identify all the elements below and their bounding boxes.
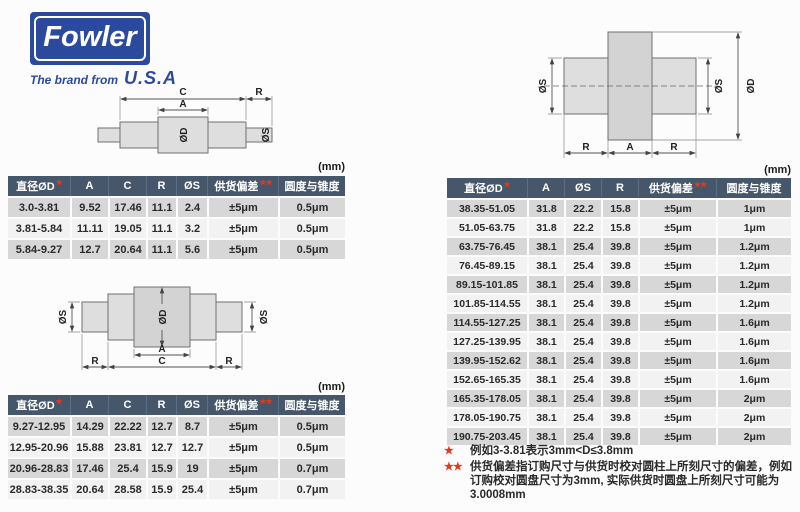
table-row: 76.45-89.1538.125.439.8±5μm1.2μm xyxy=(447,255,791,274)
table-cell: 38.1 xyxy=(527,255,564,274)
table-row: 190.75-203.4538.125.439.8±5μm2μm xyxy=(447,426,791,445)
dim-label-R: R xyxy=(255,87,263,98)
star-marker: ★★ xyxy=(444,460,470,474)
column-header: 供货偏差★★ xyxy=(207,395,278,415)
column-header: C xyxy=(108,176,146,196)
table-cell: 39.8 xyxy=(601,255,638,274)
table-cell: 152.65-165.35 xyxy=(447,369,527,388)
shaft-stub-left xyxy=(82,302,108,332)
column-header: C xyxy=(108,395,146,415)
dim-label-R-right: R xyxy=(225,356,233,367)
star-marker: ★★ xyxy=(259,178,271,187)
table-cell: 2μm xyxy=(716,388,791,407)
star-marker: ★★ xyxy=(259,397,271,406)
table-cell: 25.4 xyxy=(564,388,601,407)
table-cell: 15.88 xyxy=(70,436,108,457)
table-cell: 0.7μm xyxy=(278,457,345,478)
table-cell: 1.2μm xyxy=(716,255,791,274)
table-row: 101.85-114.5538.125.439.8±5μm1.2μm xyxy=(447,293,791,312)
dim-label-A: A xyxy=(626,142,633,153)
column-header: 直径ØD★ xyxy=(447,178,527,198)
dim-label-OS-right: ØS xyxy=(259,309,270,324)
header-row: 直径ØD★ACRØS供货偏差★★圆度与锥度 xyxy=(8,395,345,415)
header-row: 直径ØD★ACRØS供货偏差★★圆度与锥度 xyxy=(8,176,345,196)
brand-name: Fowler xyxy=(43,21,136,56)
table-cell: ±5μm xyxy=(638,350,716,369)
table-cell: ±5μm xyxy=(207,238,278,259)
table-cell: 38.1 xyxy=(527,293,564,312)
table-cell: ±5μm xyxy=(638,198,716,217)
table-cell: 12.7 xyxy=(146,415,176,436)
table-cell: 1.2μm xyxy=(716,293,791,312)
table-cell: 178.05-190.75 xyxy=(447,407,527,426)
star-marker: ★★ xyxy=(694,180,706,189)
table-cell: 3.0-3.81 xyxy=(8,196,70,217)
spec-table-small-lower: 直径ØD★ACRØS供货偏差★★圆度与锥度9.27-12.9514.2922.2… xyxy=(8,395,345,499)
table-cell: 190.75-203.45 xyxy=(447,426,527,445)
shaft-stub-left xyxy=(98,128,120,142)
table-row: 12.95-20.9615.8823.8112.712.7±5μm0.5μm xyxy=(8,436,345,457)
table-cell: 39.8 xyxy=(601,331,638,350)
table-cell: 2μm xyxy=(716,426,791,445)
shaft-mid-right xyxy=(190,294,216,340)
table-cell: 0.5μm xyxy=(278,436,345,457)
table-cell: 101.85-114.55 xyxy=(447,293,527,312)
footnotes: ★ 例如3-3.81表示3mm<D≤3.8mm ★★ 供货偏差指订购尺寸与供货时… xyxy=(444,444,796,504)
table-cell: 39.8 xyxy=(601,388,638,407)
table-cell: 31.8 xyxy=(527,198,564,217)
table-cell: 38.1 xyxy=(527,274,564,293)
table-cell: 139.95-152.62 xyxy=(447,350,527,369)
table-cell: 165.35-178.05 xyxy=(447,388,527,407)
dim-label-OS: ØS xyxy=(261,127,272,142)
column-header: 圆度与锥度 xyxy=(716,178,791,198)
footnote-size-range: ★ 例如3-3.81表示3mm<D≤3.8mm xyxy=(444,444,796,458)
table-cell: 23.81 xyxy=(108,436,146,457)
table-cell: 2μm xyxy=(716,407,791,426)
table-cell: 25.4 xyxy=(564,350,601,369)
table-row: 5.84-9.2712.720.6411.15.6±5μm0.5μm xyxy=(8,238,345,259)
table-cell: 1.2μm xyxy=(716,236,791,255)
table-cell: 15.9 xyxy=(146,478,176,499)
star-marker: ★ xyxy=(56,397,62,406)
table-cell: 11.11 xyxy=(70,217,108,238)
table-cell: 15.9 xyxy=(146,457,176,478)
table-cell: ±5μm xyxy=(207,196,278,217)
shaft-mid-left xyxy=(120,122,158,148)
tagline-text: The brand from xyxy=(30,73,118,87)
table-cell: ±5μm xyxy=(638,369,716,388)
table-cell: 12.7 xyxy=(146,436,176,457)
table-cell: 12.7 xyxy=(70,238,108,259)
dim-label-R-left: R xyxy=(91,356,99,367)
table-row: 38.35-51.0531.822.215.8±5μm1μm xyxy=(447,198,791,217)
table-cell: 15.8 xyxy=(601,217,638,236)
table-cell: ±5μm xyxy=(638,217,716,236)
table-cell: 25.4 xyxy=(564,274,601,293)
shaft-stub-right xyxy=(216,302,242,332)
table-cell: 39.8 xyxy=(601,369,638,388)
table-cell: ±5μm xyxy=(638,236,716,255)
table-cell: ±5μm xyxy=(638,274,716,293)
table-cell: 114.55-127.25 xyxy=(447,312,527,331)
table-cell: 20.64 xyxy=(108,238,146,259)
table-cell: 1.6μm xyxy=(716,312,791,331)
table-cell: 25.4 xyxy=(108,457,146,478)
table-cell: 38.1 xyxy=(527,350,564,369)
table-cell: 25.4 xyxy=(564,236,601,255)
table-cell: 20.96-28.83 xyxy=(8,457,70,478)
table-cell: 1μm xyxy=(716,198,791,217)
star-marker: ★ xyxy=(504,180,510,189)
table-cell: 51.05-63.75 xyxy=(447,217,527,236)
table-cell: 8.7 xyxy=(176,415,207,436)
table-cell: 38.35-51.05 xyxy=(447,198,527,217)
units-label-right: (mm) xyxy=(447,164,791,176)
table-cell: 3.81-5.84 xyxy=(8,217,70,238)
dim-label-OS-left: ØS xyxy=(58,309,69,324)
dim-label-OD: ØD xyxy=(746,79,757,94)
shaft-mid-left xyxy=(108,294,134,340)
table-row: 20.96-28.8317.4625.415.919±5μm0.7μm xyxy=(8,457,345,478)
column-header: A xyxy=(527,178,564,198)
table-cell: 89.15-101.85 xyxy=(447,274,527,293)
table-cell: 25.4 xyxy=(564,312,601,331)
star-marker: ★ xyxy=(56,178,62,187)
column-header: ØS xyxy=(176,395,207,415)
table-cell: 25.4 xyxy=(564,331,601,350)
table-cell: 20.64 xyxy=(70,478,108,499)
column-header: R xyxy=(601,178,638,198)
table-row: 28.83-38.3520.6428.5815.925.4±5μm0.7μm xyxy=(8,478,345,499)
dim-label-R-left: R xyxy=(582,142,590,153)
table-cell: 25.4 xyxy=(564,255,601,274)
star-marker: ★ xyxy=(444,444,470,458)
table-row: 63.75-76.4538.125.439.8±5μm1.2μm xyxy=(447,236,791,255)
column-header: 直径ØD★ xyxy=(8,176,70,196)
table-row: 89.15-101.8538.125.439.8±5μm1.2μm xyxy=(447,274,791,293)
table-cell: 11.1 xyxy=(146,238,176,259)
column-header: R xyxy=(146,176,176,196)
table-cell: 31.8 xyxy=(527,217,564,236)
units-label-lower: (mm) xyxy=(8,381,345,393)
column-header: 供货偏差★★ xyxy=(207,176,278,196)
table-cell: 39.8 xyxy=(601,426,638,445)
table-row: 3.0-3.819.5217.4611.12.4±5μm0.5μm xyxy=(8,196,345,217)
table-cell: 19 xyxy=(176,457,207,478)
table-cell: ±5μm xyxy=(638,255,716,274)
dim-label-OS-right: ØS xyxy=(714,78,725,93)
header-row: 直径ØD★AØSR供货偏差★★圆度与锥度 xyxy=(447,178,791,198)
dim-label-C: C xyxy=(158,356,165,367)
dim-label-OD: ØD xyxy=(158,310,169,325)
table-cell: 22.22 xyxy=(108,415,146,436)
table-cell: 28.58 xyxy=(108,478,146,499)
table-cell: 0.5μm xyxy=(278,196,345,217)
table-cell: ±5μm xyxy=(207,217,278,238)
table-row: 178.05-190.7538.125.439.8±5μm2μm xyxy=(447,407,791,426)
table-cell: 1.6μm xyxy=(716,350,791,369)
table-row: 139.95-152.6238.125.439.8±5μm1.6μm xyxy=(447,350,791,369)
table-cell: 25.4 xyxy=(564,407,601,426)
table-cell: 9.52 xyxy=(70,196,108,217)
table-cell: 39.8 xyxy=(601,274,638,293)
table-cell: 76.45-89.15 xyxy=(447,255,527,274)
dim-label-A: A xyxy=(179,99,186,110)
footnote-supply-deviation: ★★ 供货偏差指订购尺寸与供货时校对圆柱上所刻尺寸的偏差，例如订购校对圆盘尺寸为… xyxy=(444,460,796,502)
table-cell: 39.8 xyxy=(601,236,638,255)
gauge-side-diagram-large: ØS ØS ØD A C R R xyxy=(52,272,282,378)
gauge-front-diagram: ØS ØS ØD R A R xyxy=(522,12,766,164)
column-header: 直径ØD★ xyxy=(8,395,70,415)
column-header: 圆度与锥度 xyxy=(278,176,345,196)
table-cell: ±5μm xyxy=(207,415,278,436)
table-cell: 38.1 xyxy=(527,369,564,388)
table-cell: ±5μm xyxy=(207,457,278,478)
table-cell: 0.5μm xyxy=(278,415,345,436)
shaft-mid-right xyxy=(208,122,246,148)
table-cell: 25.4 xyxy=(564,293,601,312)
table-cell: 1.6μm xyxy=(716,331,791,350)
table-cell: 38.1 xyxy=(527,236,564,255)
table-cell: ±5μm xyxy=(638,407,716,426)
table-cell: 39.8 xyxy=(601,350,638,369)
column-header: A xyxy=(70,395,108,415)
dim-label-R-right: R xyxy=(670,142,678,153)
table-cell: 25.4 xyxy=(564,426,601,445)
table-cell: ±5μm xyxy=(638,388,716,407)
table-cell: 39.8 xyxy=(601,293,638,312)
table-cell: 11.1 xyxy=(146,196,176,217)
table-cell: ±5μm xyxy=(638,293,716,312)
column-header: 圆度与锥度 xyxy=(278,395,345,415)
table-cell: 17.46 xyxy=(70,457,108,478)
table-cell: 38.1 xyxy=(527,388,564,407)
table-cell: 9.27-12.95 xyxy=(8,415,70,436)
table-cell: 0.7μm xyxy=(278,478,345,499)
table-cell: 38.1 xyxy=(527,331,564,350)
table-cell: ±5μm xyxy=(638,312,716,331)
table-cell: 1.6μm xyxy=(716,369,791,388)
table-cell: 22.2 xyxy=(564,217,601,236)
table-cell: 17.46 xyxy=(108,196,146,217)
table-cell: 14.29 xyxy=(70,415,108,436)
table-cell: 25.4 xyxy=(564,369,601,388)
table-cell: ±5μm xyxy=(638,331,716,350)
table-cell: 1μm xyxy=(716,217,791,236)
table-cell: 39.8 xyxy=(601,407,638,426)
table-cell: 12.95-20.96 xyxy=(8,436,70,457)
dim-label-OD: ØD xyxy=(179,128,190,143)
gauge-side-diagram-small: C R A ØD ØS xyxy=(90,86,282,166)
table-cell: 3.2 xyxy=(176,217,207,238)
units-label-upper: (mm) xyxy=(8,161,345,173)
dim-label-OS-left: ØS xyxy=(538,78,549,93)
table-cell: 22.2 xyxy=(564,198,601,217)
table-row: 3.81-5.8411.1119.0511.13.2±5μm0.5μm xyxy=(8,217,345,238)
table-row: 152.65-165.3538.125.439.8±5μm1.6μm xyxy=(447,369,791,388)
table-cell: 38.1 xyxy=(527,312,564,331)
table-cell: 127.25-139.95 xyxy=(447,331,527,350)
spec-table-small-upper: 直径ØD★ACRØS供货偏差★★圆度与锥度3.0-3.819.5217.4611… xyxy=(8,176,345,259)
table-cell: 15.8 xyxy=(601,198,638,217)
column-header: A xyxy=(70,176,108,196)
table-cell: 0.5μm xyxy=(278,238,345,259)
table-cell: 0.5μm xyxy=(278,217,345,238)
table-row: 114.55-127.2538.125.439.8±5μm1.6μm xyxy=(447,312,791,331)
table-cell: 5.84-9.27 xyxy=(8,238,70,259)
table-cell: 39.8 xyxy=(601,312,638,331)
table-cell: 19.05 xyxy=(108,217,146,238)
table-cell: 1.2μm xyxy=(716,274,791,293)
table-row: 127.25-139.9538.125.439.8±5μm1.6μm xyxy=(447,331,791,350)
dim-label-A: A xyxy=(158,344,165,355)
dim-label-C: C xyxy=(179,87,186,98)
table-row: 51.05-63.7531.822.215.8±5μm1μm xyxy=(447,217,791,236)
table-cell: 38.1 xyxy=(527,426,564,445)
table-cell: 38.1 xyxy=(527,407,564,426)
table-cell: 28.83-38.35 xyxy=(8,478,70,499)
table-cell: ±5μm xyxy=(207,436,278,457)
spec-table-large: 直径ØD★AØSR供货偏差★★圆度与锥度38.35-51.0531.822.21… xyxy=(447,178,791,445)
table-row: 9.27-12.9514.2922.2212.78.7±5μm0.5μm xyxy=(8,415,345,436)
column-header: R xyxy=(146,395,176,415)
fowler-logo: Fowler xyxy=(30,12,150,65)
table-cell: ±5μm xyxy=(207,478,278,499)
column-header: ØS xyxy=(176,176,207,196)
table-row: 165.35-178.0538.125.439.8±5μm2μm xyxy=(447,388,791,407)
table-cell: 12.7 xyxy=(176,436,207,457)
column-header: ØS xyxy=(564,178,601,198)
table-cell: 25.4 xyxy=(176,478,207,499)
table-cell: ±5μm xyxy=(638,426,716,445)
table-cell: 63.75-76.45 xyxy=(447,236,527,255)
table-cell: 11.1 xyxy=(146,217,176,238)
column-header: 供货偏差★★ xyxy=(638,178,716,198)
table-cell: 2.4 xyxy=(176,196,207,217)
table-cell: 5.6 xyxy=(176,238,207,259)
